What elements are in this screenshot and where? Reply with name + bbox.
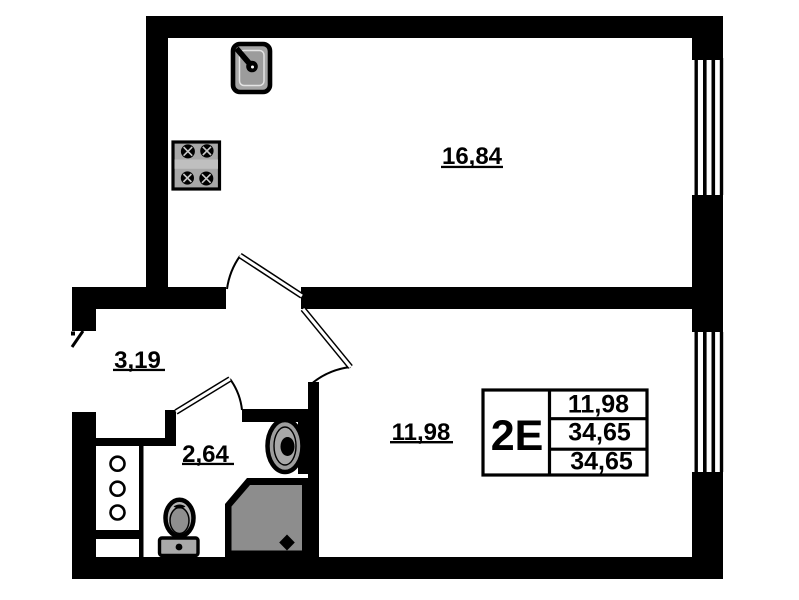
svg-text:34,65: 34,65 (570, 448, 633, 476)
svg-text:11,98: 11,98 (568, 391, 629, 419)
svg-text:2Е: 2Е (491, 412, 544, 460)
svg-text:34,65: 34,65 (568, 419, 631, 447)
